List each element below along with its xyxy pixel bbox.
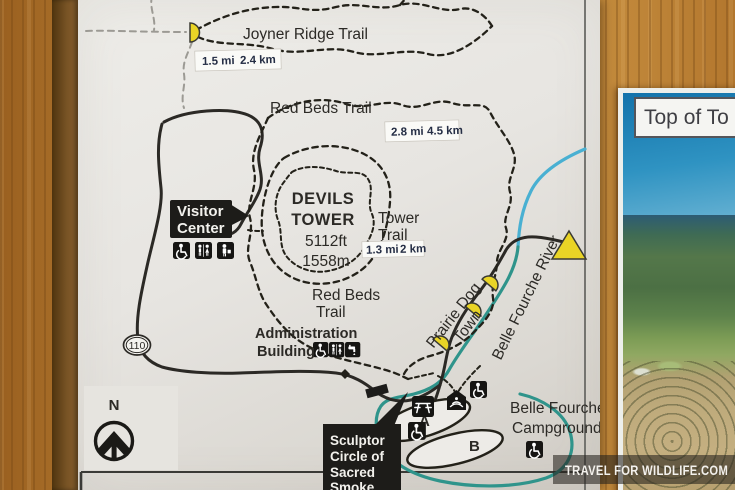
joyner-trail-label: Joyner Ridge Trail (243, 26, 368, 43)
svg-text:1.3 mi: 1.3 mi (366, 244, 399, 257)
sculptor-callout: Sculptor Circle of Sacred Smoke (323, 392, 408, 490)
park-boundary-line (86, 0, 192, 108)
svg-text:Circle of: Circle of (330, 449, 385, 464)
tower-view-poster: Top of To (618, 88, 735, 490)
svg-text:5112ft: 5112ft (305, 233, 348, 250)
watermark: TRAVEL FOR WILDLIFE.COM (553, 455, 735, 484)
information-icon (217, 242, 234, 259)
svg-text:Belle Fourche: Belle Fourche (510, 400, 600, 417)
bulletin-board-photo: A B (0, 0, 735, 490)
svg-text:TOWER: TOWER (291, 211, 355, 229)
wood-frame-strip (52, 0, 78, 490)
wheelchair-icon (313, 342, 328, 357)
svg-text:Administration: Administration (255, 326, 357, 342)
svg-text:110: 110 (129, 340, 146, 352)
poster-title-text: Top of To (644, 106, 729, 130)
visitor-center-label: Visitor (177, 203, 224, 220)
trail-labels: Joyner Ridge Trail 1.5 mi 2.4 km Red Bed… (195, 26, 463, 321)
svg-text:2.4 km: 2.4 km (240, 54, 276, 67)
amphitheater-icon (447, 390, 466, 410)
campground-label: Belle Fourche Campground (510, 400, 600, 437)
point-of-interest-diamond (340, 369, 350, 379)
svg-text:Sacred: Sacred (330, 465, 375, 480)
wheelchair-icon (408, 422, 426, 440)
poster-landscape-photo (623, 215, 735, 490)
svg-text:Trail: Trail (316, 304, 346, 321)
picnic-area-icon (412, 396, 434, 417)
sculptor-label: Sculptor (330, 433, 385, 448)
svg-text:1558m: 1558m (302, 253, 349, 270)
watermark-text: TRAVEL FOR WILDLIFE.COM (565, 462, 728, 478)
svg-text:Belle Fourche River: Belle Fourche River (489, 233, 564, 363)
svg-text:2.8 mi: 2.8 mi (391, 126, 424, 139)
wheelchair-icon (173, 242, 190, 259)
wheelchair-icon (526, 441, 543, 458)
svg-text:Smoke: Smoke (330, 480, 375, 490)
svg-text:Center: Center (177, 220, 225, 237)
drinking-water-icon (345, 342, 360, 357)
svg-text:Campground: Campground (512, 420, 600, 437)
red-beds-trail-label: Red Beds Trail (270, 100, 372, 117)
tower-trail-label: Tower (378, 210, 419, 227)
svg-text:2 km: 2 km (400, 243, 427, 256)
north-arrow: N (84, 386, 178, 470)
wheelchair-icon (470, 381, 487, 398)
trail-map-paper: A B (78, 0, 600, 490)
river-label: Belle Fourche River (489, 233, 564, 363)
svg-text:DEVILS: DEVILS (292, 190, 355, 208)
restrooms-icon (329, 342, 344, 357)
route-110-shield: 110 (124, 335, 151, 355)
restrooms-icon (195, 242, 212, 259)
visitor-center-callout: Visitor Center (170, 200, 249, 238)
red-beds-trail-label-2: Red Beds (312, 287, 380, 304)
svg-text:Building: Building (257, 344, 315, 360)
poster-title: Top of To (634, 97, 735, 138)
svg-text:1.5 mi: 1.5 mi (202, 55, 235, 68)
trail-map: A B (78, 0, 600, 490)
svg-text:4.5 km: 4.5 km (427, 125, 463, 138)
loop-b-label: B (469, 438, 480, 455)
north-label: N (109, 397, 120, 414)
devils-tower-label: DEVILS TOWER 5112ft 1558m (291, 190, 355, 270)
joyner-trailhead-marker (190, 23, 200, 42)
